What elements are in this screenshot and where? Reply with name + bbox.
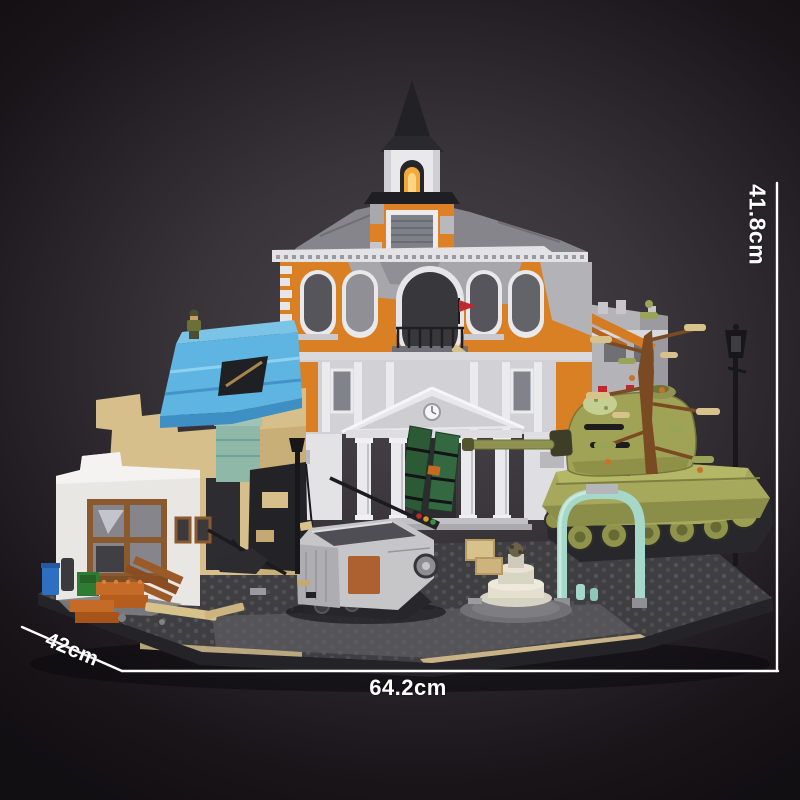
ruined-house	[56, 310, 308, 617]
blue-bin	[42, 566, 59, 595]
fallen-green-doors	[398, 426, 460, 512]
string-course	[280, 352, 592, 360]
blue-roof	[160, 320, 302, 428]
stowage-door-panel	[348, 556, 380, 594]
height-dimension-label: 41.8cm	[744, 180, 769, 270]
spire	[394, 80, 430, 136]
upper-facade	[280, 262, 592, 375]
standing-lamp-post	[295, 446, 300, 574]
clock-tower	[364, 80, 460, 262]
product-photo: 41.8cm 64.2cm 42cm	[0, 0, 800, 800]
width-dimension-label: 64.2cm	[338, 676, 478, 700]
grey-canister	[61, 558, 74, 591]
soldier-minifigure	[187, 310, 201, 340]
belfry-ledge	[364, 192, 460, 204]
mint-jar	[576, 584, 585, 600]
turret-rail	[584, 424, 624, 430]
